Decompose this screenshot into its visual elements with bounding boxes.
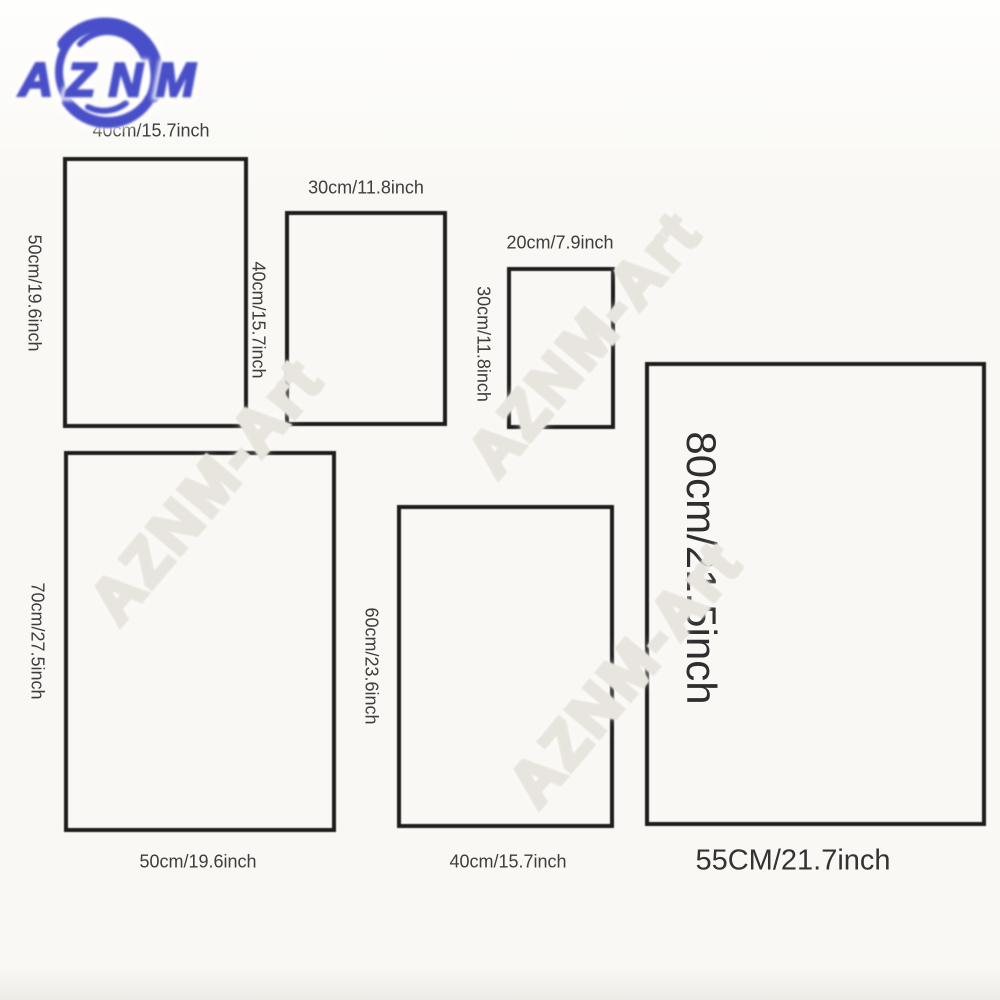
svg-text:AZNM: AZNM xyxy=(18,53,209,106)
